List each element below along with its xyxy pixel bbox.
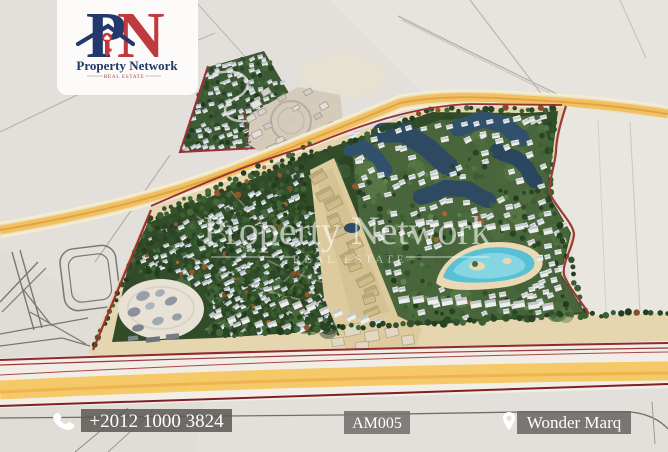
svg-text:Property Network: Property Network bbox=[203, 208, 491, 253]
svg-text:REAL ESTATE: REAL ESTATE bbox=[293, 252, 408, 266]
svg-text:REAL ESTATE: REAL ESTATE bbox=[104, 74, 145, 80]
svg-text:Property Network: Property Network bbox=[76, 58, 178, 73]
svg-text:AM005: AM005 bbox=[352, 415, 402, 432]
svg-text:+2012 1000 3824: +2012 1000 3824 bbox=[89, 411, 224, 432]
svg-text:Wonder Marq: Wonder Marq bbox=[527, 413, 622, 432]
